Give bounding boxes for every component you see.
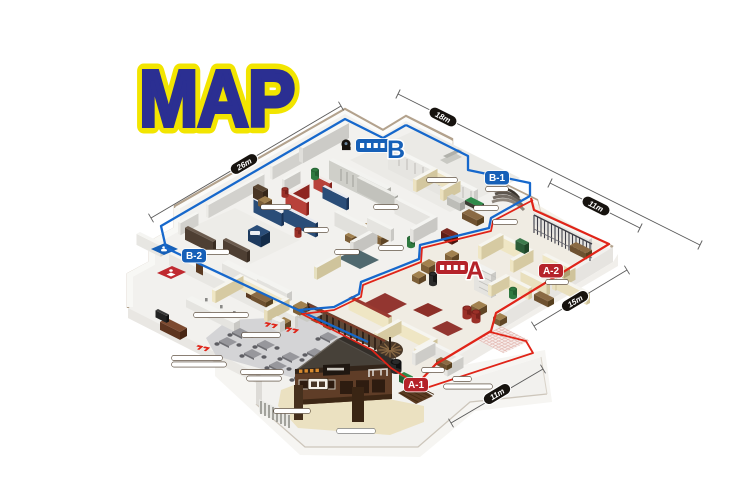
svg-text:MAP: MAP [139, 54, 295, 144]
svg-text:A: A [466, 257, 484, 285]
svg-text:B-2: B-2 [186, 251, 203, 262]
svg-text:A-1: A-1 [408, 380, 425, 391]
svg-text:B-1: B-1 [489, 173, 506, 184]
svg-text:A-2: A-2 [543, 266, 560, 277]
svg-text:B: B [387, 136, 405, 164]
